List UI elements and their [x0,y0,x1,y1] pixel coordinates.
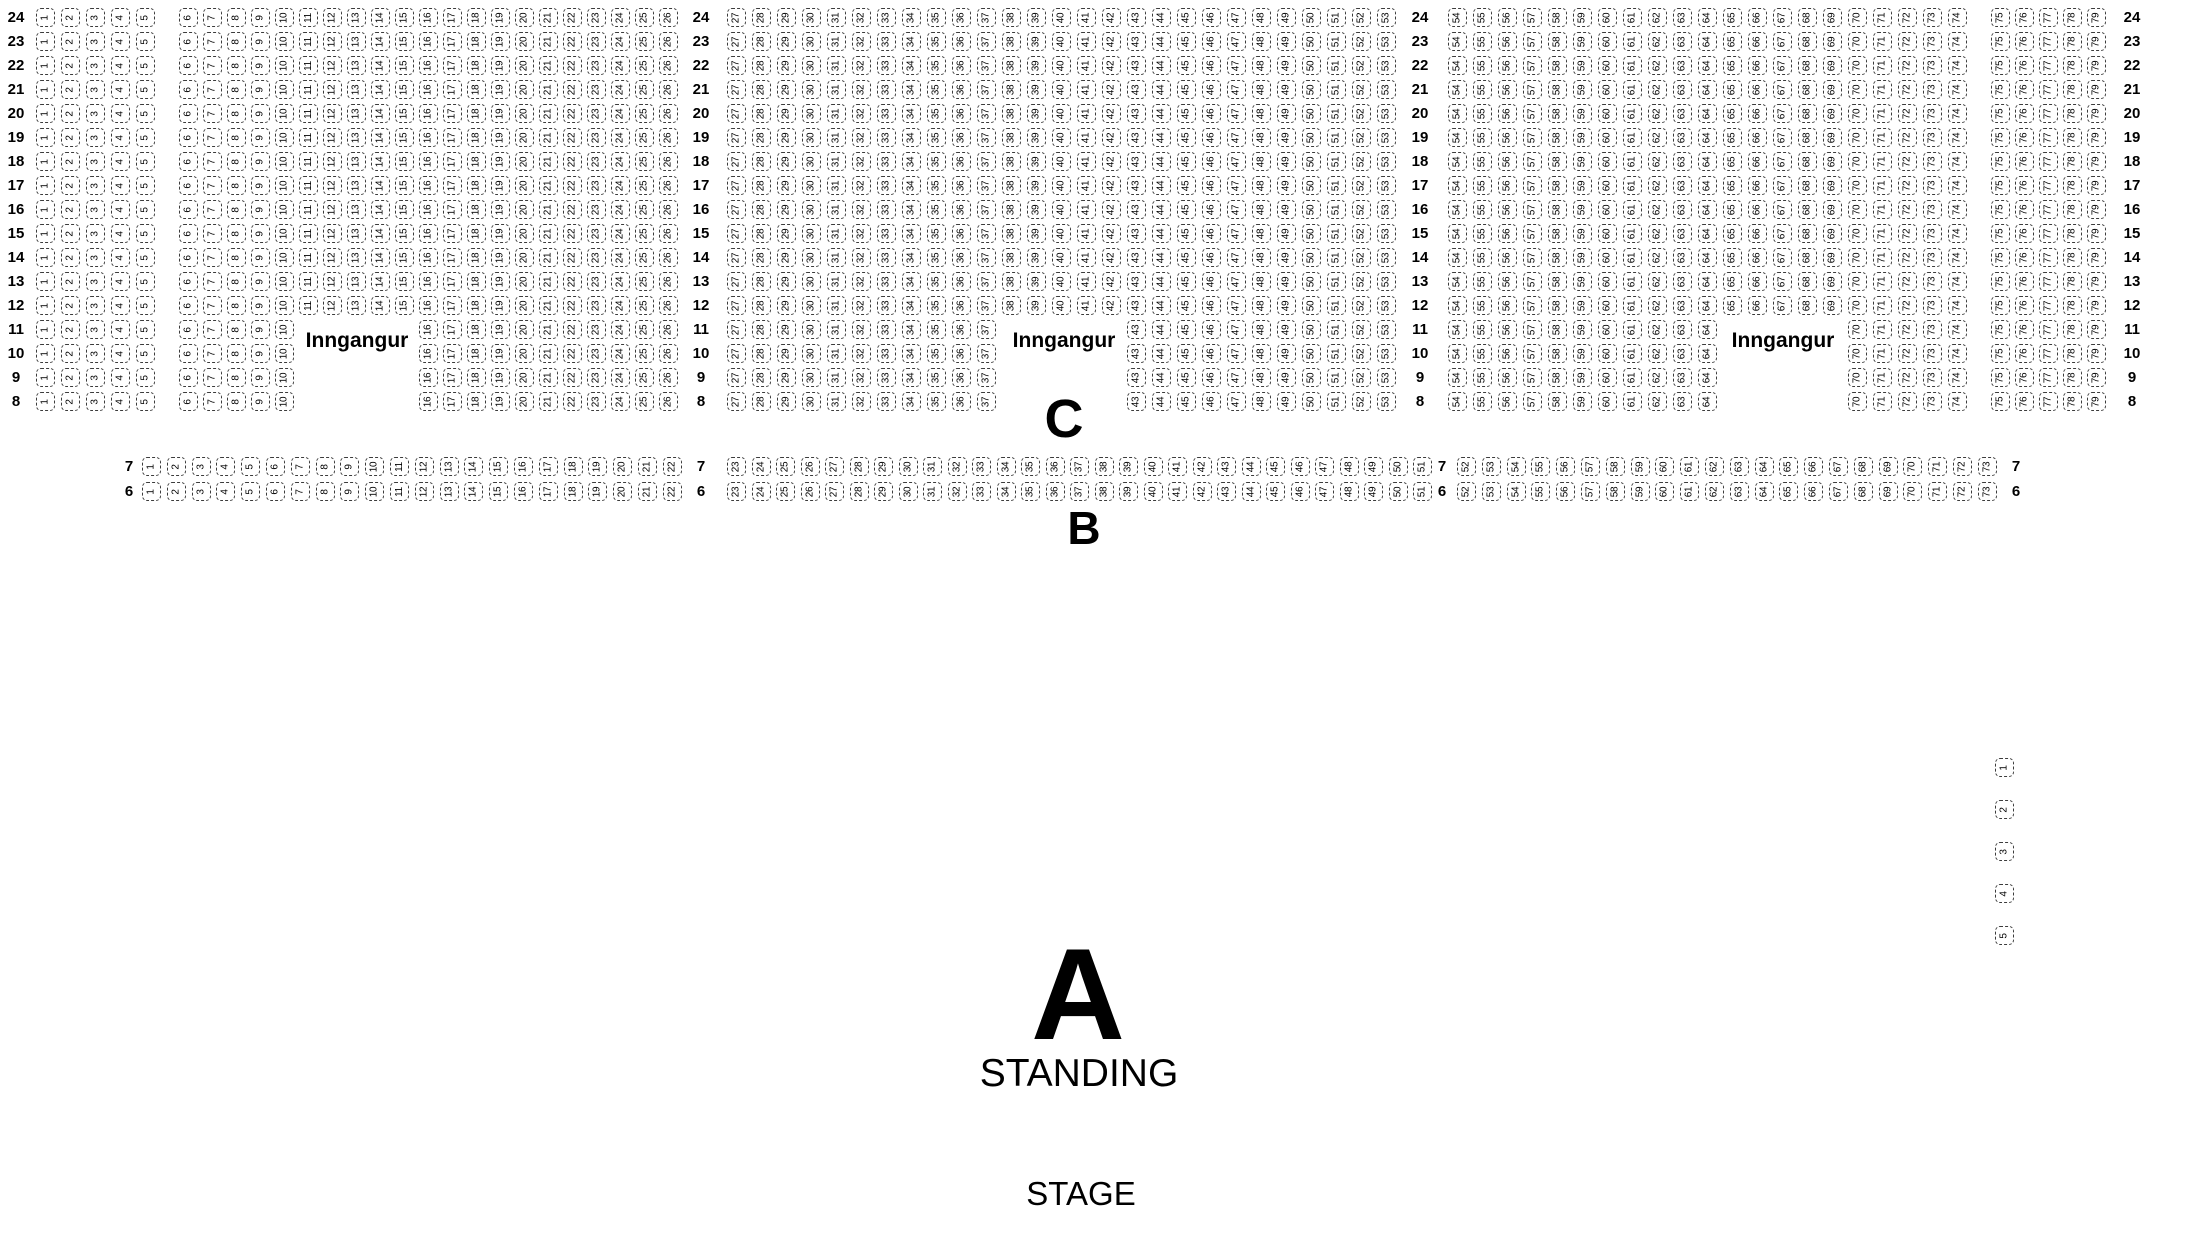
seat[interactable]: 58 [1548,320,1567,339]
seat[interactable]: 31 [827,8,846,27]
seat[interactable]: 59 [1573,32,1592,51]
seat[interactable]: 36 [952,320,971,339]
seat[interactable]: 70 [1848,224,1867,243]
seat[interactable]: 22 [563,248,582,267]
seat[interactable]: 58 [1548,200,1567,219]
seat[interactable]: 73 [1978,457,1997,476]
seat[interactable]: 43 [1127,152,1146,171]
seat[interactable]: 51 [1327,296,1346,315]
seat[interactable]: 56 [1498,152,1517,171]
seat[interactable]: 34 [902,200,921,219]
seat[interactable]: 36 [952,56,971,75]
seat[interactable]: 64 [1698,224,1717,243]
seat[interactable]: 76 [2015,392,2034,411]
seat[interactable]: 65 [1779,482,1798,501]
seat[interactable]: 6 [179,368,198,387]
seat[interactable]: 44 [1152,56,1171,75]
seat[interactable]: 31 [923,482,942,501]
seat[interactable]: 31 [827,56,846,75]
seat[interactable]: 4 [216,482,235,501]
seat[interactable]: 70 [1848,104,1867,123]
seat[interactable]: 29 [777,296,796,315]
seat[interactable]: 57 [1523,392,1542,411]
seat[interactable]: 31 [827,296,846,315]
seat[interactable]: 4 [111,224,130,243]
seat[interactable]: 51 [1327,392,1346,411]
seat[interactable]: 19 [491,344,510,363]
seat[interactable]: 73 [1923,368,1942,387]
seat[interactable]: 46 [1202,176,1221,195]
seat[interactable]: 11 [299,296,318,315]
seat[interactable]: 78 [2063,128,2082,147]
seat[interactable]: 61 [1623,224,1642,243]
seat[interactable]: 64 [1698,176,1717,195]
seat[interactable]: 43 [1217,482,1236,501]
seat[interactable]: 41 [1077,104,1096,123]
seat[interactable]: 43 [1127,272,1146,291]
seat[interactable]: 6 [179,152,198,171]
seat[interactable]: 11 [299,176,318,195]
seat[interactable]: 33 [877,392,896,411]
seat[interactable]: 75 [1991,80,2010,99]
seat[interactable]: 47 [1227,8,1246,27]
seat[interactable]: 70 [1848,320,1867,339]
seat[interactable]: 40 [1052,224,1071,243]
seat[interactable]: 20 [515,200,534,219]
seat[interactable]: 26 [659,296,678,315]
seat[interactable]: 47 [1227,368,1246,387]
seat[interactable]: 60 [1598,368,1617,387]
seat[interactable]: 76 [2015,80,2034,99]
seat[interactable]: 15 [489,482,508,501]
seat[interactable]: 9 [251,224,270,243]
seat[interactable]: 15 [395,224,414,243]
seat[interactable]: 26 [659,368,678,387]
seat[interactable]: 10 [275,80,294,99]
seat[interactable]: 36 [952,128,971,147]
seat[interactable]: 57 [1523,200,1542,219]
seat[interactable]: 30 [899,457,918,476]
seat[interactable]: 77 [2039,56,2058,75]
seat[interactable]: 58 [1548,32,1567,51]
seat[interactable]: 2 [61,8,80,27]
seat[interactable]: 34 [902,272,921,291]
seat[interactable]: 55 [1473,32,1492,51]
seat[interactable]: 59 [1573,368,1592,387]
seat[interactable]: 76 [2015,104,2034,123]
seat[interactable]: 75 [1991,344,2010,363]
seat[interactable]: 30 [802,200,821,219]
seat[interactable]: 73 [1923,320,1942,339]
seat[interactable]: 2 [61,152,80,171]
seat[interactable]: 20 [515,176,534,195]
seat[interactable]: 35 [927,344,946,363]
seat[interactable]: 9 [251,320,270,339]
seat[interactable]: 58 [1548,176,1567,195]
seat[interactable]: 71 [1873,248,1892,267]
seat[interactable]: 66 [1748,152,1767,171]
seat[interactable]: 13 [347,80,366,99]
seat[interactable]: 4 [111,56,130,75]
seat[interactable]: 78 [2063,32,2082,51]
seat[interactable]: 54 [1448,224,1467,243]
seat[interactable]: 9 [251,128,270,147]
seat[interactable]: 58 [1548,296,1567,315]
seat[interactable]: 5 [136,200,155,219]
seat[interactable]: 36 [952,272,971,291]
seat[interactable]: 32 [852,344,871,363]
seat[interactable]: 24 [611,320,630,339]
seat[interactable]: 3 [86,8,105,27]
seat[interactable]: 17 [443,80,462,99]
seat[interactable]: 51 [1327,8,1346,27]
seat[interactable]: 18 [467,104,486,123]
seat[interactable]: 59 [1631,457,1650,476]
seat[interactable]: 46 [1202,8,1221,27]
seat[interactable]: 62 [1648,104,1667,123]
seat[interactable]: 47 [1227,200,1246,219]
seat[interactable]: 10 [275,392,294,411]
seat[interactable]: 45 [1177,248,1196,267]
seat[interactable]: 9 [251,296,270,315]
seat[interactable]: 18 [467,56,486,75]
seat[interactable]: 33 [877,344,896,363]
seat[interactable]: 2 [167,457,186,476]
seat[interactable]: 22 [563,8,582,27]
seat[interactable]: 62 [1648,32,1667,51]
seat[interactable]: 21 [539,344,558,363]
seat[interactable]: 43 [1127,296,1146,315]
seat[interactable]: 75 [1991,296,2010,315]
seat[interactable]: 73 [1923,272,1942,291]
seat[interactable]: 44 [1242,457,1261,476]
seat[interactable]: 36 [952,104,971,123]
seat[interactable]: 44 [1152,104,1171,123]
seat[interactable]: 27 [727,32,746,51]
seat[interactable]: 15 [395,176,414,195]
seat[interactable]: 53 [1377,80,1396,99]
seat[interactable]: 52 [1352,8,1371,27]
seat[interactable]: 63 [1673,344,1692,363]
seat[interactable]: 79 [2087,56,2106,75]
seat[interactable]: 12 [323,8,342,27]
seat[interactable]: 23 [587,80,606,99]
seat[interactable]: 70 [1848,176,1867,195]
seat[interactable]: 76 [2015,272,2034,291]
seat[interactable]: 42 [1102,248,1121,267]
seat[interactable]: 45 [1177,344,1196,363]
seat[interactable]: 63 [1730,482,1749,501]
seat[interactable]: 31 [923,457,942,476]
seat[interactable]: 37 [977,176,996,195]
seat[interactable]: 15 [395,104,414,123]
seat[interactable]: 71 [1873,8,1892,27]
seat[interactable]: 17 [443,152,462,171]
seat[interactable]: 1 [36,368,55,387]
seat[interactable]: 69 [1823,8,1842,27]
seat[interactable]: 15 [489,457,508,476]
seat[interactable]: 48 [1252,32,1271,51]
seat[interactable]: 7 [203,368,222,387]
seat[interactable]: 79 [2087,320,2106,339]
seat[interactable]: 11 [299,80,318,99]
seat[interactable]: 35 [927,176,946,195]
seat[interactable]: 74 [1948,128,1967,147]
seat[interactable]: 56 [1498,56,1517,75]
seat[interactable]: 7 [203,392,222,411]
seat[interactable]: 62 [1648,248,1667,267]
seat[interactable]: 32 [852,392,871,411]
seat[interactable]: 3 [86,344,105,363]
seat[interactable]: 22 [563,176,582,195]
seat[interactable]: 21 [638,482,657,501]
seat[interactable]: 77 [2039,104,2058,123]
seat[interactable]: 55 [1473,128,1492,147]
seat[interactable]: 11 [390,457,409,476]
seat[interactable]: 47 [1227,104,1246,123]
seat[interactable]: 74 [1948,368,1967,387]
seat[interactable]: 61 [1623,248,1642,267]
seat[interactable]: 19 [491,224,510,243]
seat[interactable]: 3 [86,248,105,267]
seat[interactable]: 60 [1598,320,1617,339]
seat[interactable]: 34 [902,56,921,75]
seat[interactable]: 7 [291,457,310,476]
seat[interactable]: 25 [635,392,654,411]
seat[interactable]: 23 [587,224,606,243]
seat[interactable]: 30 [802,8,821,27]
seat[interactable]: 58 [1606,457,1625,476]
seat[interactable]: 9 [251,56,270,75]
seat[interactable]: 55 [1473,272,1492,291]
seat[interactable]: 37 [977,200,996,219]
seat[interactable]: 24 [611,392,630,411]
seat[interactable]: 13 [347,152,366,171]
seat[interactable]: 43 [1127,176,1146,195]
seat[interactable]: 49 [1277,392,1296,411]
seat[interactable]: 5 [136,8,155,27]
seat[interactable]: 4 [1995,884,2014,903]
seat[interactable]: 28 [752,320,771,339]
seat[interactable]: 23 [587,152,606,171]
seat[interactable]: 2 [61,272,80,291]
seat[interactable]: 23 [587,8,606,27]
seat[interactable]: 49 [1277,296,1296,315]
seat[interactable]: 45 [1266,482,1285,501]
seat[interactable]: 27 [727,296,746,315]
seat[interactable]: 14 [371,8,390,27]
seat[interactable]: 77 [2039,392,2058,411]
seat[interactable]: 18 [564,482,583,501]
seat[interactable]: 8 [227,224,246,243]
seat[interactable]: 10 [275,344,294,363]
seat[interactable]: 30 [899,482,918,501]
seat[interactable]: 64 [1755,457,1774,476]
seat[interactable]: 48 [1252,152,1271,171]
seat[interactable]: 49 [1277,80,1296,99]
seat[interactable]: 23 [587,248,606,267]
seat[interactable]: 59 [1573,200,1592,219]
seat[interactable]: 65 [1723,272,1742,291]
seat[interactable]: 6 [179,128,198,147]
seat[interactable]: 78 [2063,392,2082,411]
seat[interactable]: 15 [395,32,414,51]
seat[interactable]: 62 [1648,296,1667,315]
seat[interactable]: 6 [179,104,198,123]
seat[interactable]: 54 [1448,368,1467,387]
seat[interactable]: 17 [443,248,462,267]
seat[interactable]: 6 [179,296,198,315]
seat[interactable]: 31 [827,392,846,411]
seat[interactable]: 1 [36,248,55,267]
seat[interactable]: 58 [1548,56,1567,75]
seat[interactable]: 41 [1077,32,1096,51]
seat[interactable]: 55 [1531,482,1550,501]
seat[interactable]: 35 [1021,457,1040,476]
seat[interactable]: 55 [1473,248,1492,267]
seat[interactable]: 31 [827,80,846,99]
seat[interactable]: 24 [611,80,630,99]
seat[interactable]: 71 [1873,200,1892,219]
seat[interactable]: 41 [1168,457,1187,476]
seat[interactable]: 68 [1798,80,1817,99]
seat[interactable]: 18 [467,224,486,243]
seat[interactable]: 69 [1823,272,1842,291]
seat[interactable]: 50 [1302,128,1321,147]
seat[interactable]: 2 [61,56,80,75]
seat[interactable]: 72 [1898,80,1917,99]
seat[interactable]: 16 [419,320,438,339]
seat[interactable]: 79 [2087,104,2106,123]
seat[interactable]: 42 [1102,56,1121,75]
seat[interactable]: 18 [467,80,486,99]
seat[interactable]: 60 [1598,200,1617,219]
seat[interactable]: 8 [227,296,246,315]
seat[interactable]: 20 [515,272,534,291]
seat[interactable]: 46 [1202,32,1221,51]
seat[interactable]: 56 [1498,8,1517,27]
seat[interactable]: 25 [635,8,654,27]
seat[interactable]: 29 [777,224,796,243]
seat[interactable]: 20 [515,80,534,99]
seat[interactable]: 31 [827,320,846,339]
seat[interactable]: 26 [659,200,678,219]
seat[interactable]: 25 [635,296,654,315]
seat[interactable]: 18 [467,128,486,147]
seat[interactable]: 29 [777,104,796,123]
seat[interactable]: 24 [752,457,771,476]
seat[interactable]: 29 [777,128,796,147]
seat[interactable]: 37 [1070,482,1089,501]
seat[interactable]: 25 [776,457,795,476]
seat[interactable]: 18 [467,152,486,171]
seat[interactable]: 68 [1798,104,1817,123]
seat[interactable]: 67 [1773,224,1792,243]
seat[interactable]: 69 [1823,224,1842,243]
seat[interactable]: 50 [1302,56,1321,75]
seat[interactable]: 53 [1377,272,1396,291]
seat[interactable]: 29 [777,320,796,339]
seat[interactable]: 70 [1848,32,1867,51]
seat[interactable]: 13 [347,176,366,195]
seat[interactable]: 60 [1598,296,1617,315]
seat[interactable]: 19 [491,56,510,75]
seat[interactable]: 30 [802,32,821,51]
seat[interactable]: 9 [251,344,270,363]
seat[interactable]: 56 [1498,368,1517,387]
seat[interactable]: 31 [827,368,846,387]
seat[interactable]: 65 [1723,152,1742,171]
seat[interactable]: 78 [2063,104,2082,123]
seat[interactable]: 23 [587,320,606,339]
seat[interactable]: 61 [1680,457,1699,476]
seat[interactable]: 1 [36,152,55,171]
seat[interactable]: 53 [1377,128,1396,147]
seat[interactable]: 65 [1723,80,1742,99]
seat[interactable]: 68 [1798,56,1817,75]
seat[interactable]: 10 [365,482,384,501]
seat[interactable]: 77 [2039,344,2058,363]
seat[interactable]: 55 [1473,344,1492,363]
seat[interactable]: 12 [323,152,342,171]
seat[interactable]: 12 [323,56,342,75]
seat[interactable]: 60 [1598,104,1617,123]
seat[interactable]: 22 [563,56,582,75]
seat[interactable]: 54 [1507,457,1526,476]
seat[interactable]: 32 [852,248,871,267]
seat[interactable]: 60 [1598,224,1617,243]
seat[interactable]: 64 [1698,128,1717,147]
seat[interactable]: 4 [111,32,130,51]
seat[interactable]: 52 [1352,56,1371,75]
seat[interactable]: 52 [1352,392,1371,411]
seat[interactable]: 47 [1315,457,1334,476]
seat[interactable]: 30 [802,272,821,291]
seat[interactable]: 52 [1352,176,1371,195]
seat[interactable]: 64 [1698,80,1717,99]
seat[interactable]: 73 [1923,176,1942,195]
seat[interactable]: 13 [347,248,366,267]
seat[interactable]: 44 [1152,344,1171,363]
seat[interactable]: 3 [86,128,105,147]
seat[interactable]: 59 [1573,392,1592,411]
seat[interactable]: 13 [347,56,366,75]
seat[interactable]: 12 [323,224,342,243]
seat[interactable]: 27 [727,392,746,411]
seat[interactable]: 77 [2039,272,2058,291]
seat[interactable]: 46 [1202,152,1221,171]
seat[interactable]: 43 [1127,368,1146,387]
seat[interactable]: 13 [347,8,366,27]
seat[interactable]: 34 [902,176,921,195]
seat[interactable]: 44 [1152,176,1171,195]
seat[interactable]: 10 [275,368,294,387]
seat[interactable]: 52 [1352,320,1371,339]
seat[interactable]: 45 [1177,224,1196,243]
seat[interactable]: 13 [347,128,366,147]
seat[interactable]: 56 [1556,482,1575,501]
seat[interactable]: 36 [952,248,971,267]
seat[interactable]: 28 [752,104,771,123]
seat[interactable]: 11 [299,200,318,219]
seat[interactable]: 45 [1177,272,1196,291]
seat[interactable]: 27 [727,200,746,219]
seat[interactable]: 22 [563,80,582,99]
seat[interactable]: 17 [443,224,462,243]
seat[interactable]: 67 [1773,104,1792,123]
seat[interactable]: 49 [1277,104,1296,123]
seat[interactable]: 62 [1648,8,1667,27]
